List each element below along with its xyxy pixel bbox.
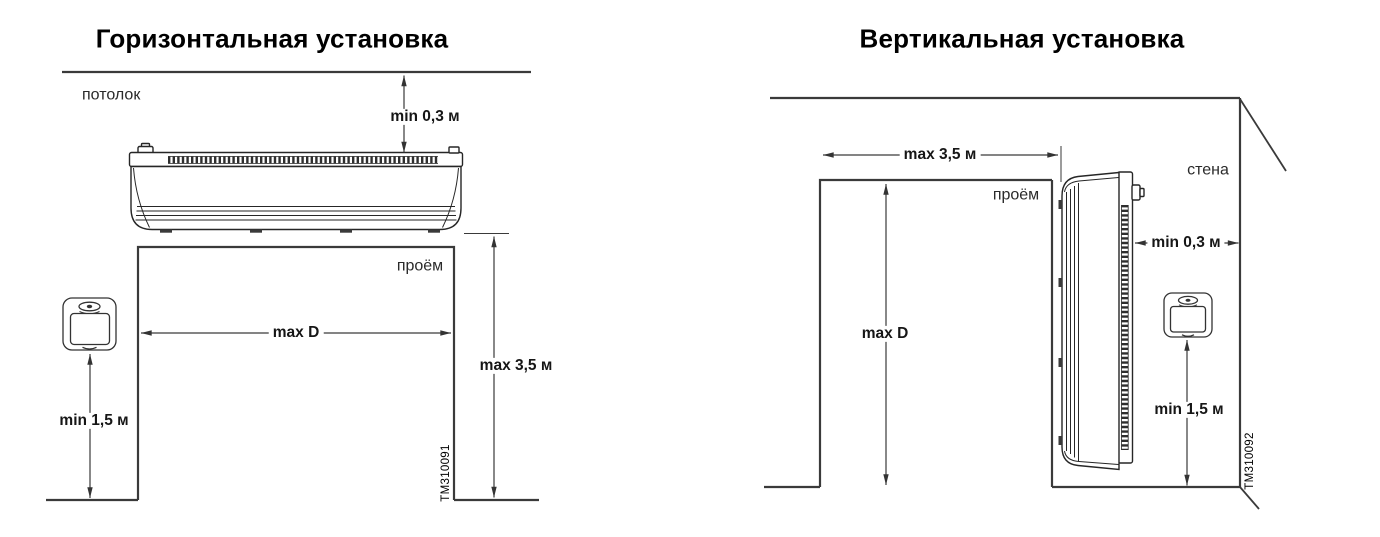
dim-label-wall-clearance: min 0,3 м — [1147, 235, 1224, 251]
dim-label-opening-width-right: max 3,5 м — [900, 147, 981, 163]
dim-label-controller-height-left: min 1,5 м — [55, 413, 132, 429]
dim-label-controller-height-right: min 1,5 м — [1150, 402, 1227, 418]
mount-bracket — [449, 147, 459, 153]
wall-corner-diagonal-bottom — [1240, 487, 1259, 509]
air-curtain-horizontal-icon — [130, 144, 463, 233]
left-diagram-title: Горизонтальная установка — [96, 25, 449, 52]
opening-label-left: проём — [397, 259, 443, 276]
air-curtain-vertical-icon — [1059, 172, 1145, 470]
ceiling-label: потолок — [82, 88, 140, 105]
wall-controller-icon — [63, 298, 116, 350]
dim-label-ceiling-clearance: min 0,3 м — [386, 109, 463, 125]
figure-id-right: TM310092 — [1244, 432, 1256, 489]
cable-gland-base — [1132, 185, 1140, 200]
controller-display — [1171, 307, 1206, 333]
figure-id-left: TM310091 — [440, 444, 452, 501]
wall-controller-icon — [1164, 293, 1212, 337]
dim-label-mounting-height: max 3,5 м — [476, 358, 557, 374]
cable-gland-icon — [1140, 189, 1144, 197]
right-diagram-title: Вертикальная установка — [860, 25, 1185, 52]
wall-corner-diagonal-top — [1240, 99, 1286, 171]
dim-label-opening-width: max D — [269, 325, 324, 341]
opening-outline — [138, 247, 454, 500]
installation-diagram: Горизонтальная установка Вертикальная ус… — [0, 0, 1380, 537]
controller-knob-dot — [87, 305, 92, 308]
wall-label: стена — [1187, 163, 1229, 180]
opening-outline — [820, 180, 1052, 487]
opening-label-right: проём — [993, 188, 1039, 205]
diagram-lineart — [0, 0, 1380, 537]
controller-knob-dot — [1186, 299, 1191, 302]
dim-label-opening-height: max D — [858, 326, 913, 342]
controller-display — [71, 314, 110, 345]
